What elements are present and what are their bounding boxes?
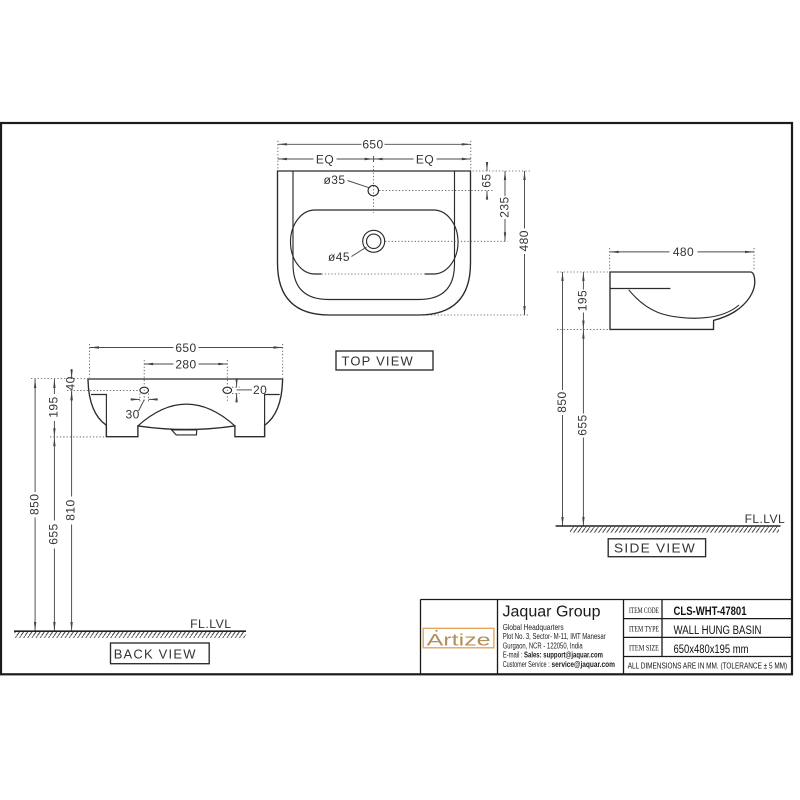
svg-text:CLS-WHT-47801: CLS-WHT-47801	[674, 606, 748, 618]
svg-text:65: 65	[479, 173, 493, 187]
svg-text:480: 480	[517, 230, 531, 251]
svg-text:Artize: Artize	[427, 631, 491, 650]
svg-text:Global Headquarters: Global Headquarters	[503, 623, 564, 632]
svg-text:WALL HUNG BASIN: WALL HUNG BASIN	[674, 625, 762, 637]
svg-text:650x480x195 mm: 650x480x195 mm	[674, 644, 749, 656]
svg-text:195: 195	[575, 290, 589, 311]
svg-text:service@jaquar.com: service@jaquar.com	[552, 660, 616, 669]
svg-text:655: 655	[46, 523, 60, 544]
svg-text:EQ: EQ	[316, 153, 334, 167]
svg-text:40: 40	[63, 376, 77, 390]
svg-text:Plot No. 3, Sector- M-11, IMT: Plot No. 3, Sector- M-11, IMT Manesar	[503, 632, 606, 641]
svg-text:ITEM CODE: ITEM CODE	[629, 605, 659, 615]
svg-text:Gurgaon, NCR - 122050, India: Gurgaon, NCR - 122050, India	[503, 642, 583, 651]
svg-text:BACK VIEW: BACK VIEW	[114, 647, 197, 662]
svg-text:Sales: support@jaquar.com: Sales: support@jaquar.com	[524, 650, 603, 659]
svg-text:810: 810	[64, 499, 78, 520]
svg-text:EQ: EQ	[416, 153, 434, 167]
svg-text:195: 195	[46, 396, 60, 417]
svg-text:Jaquar Group: Jaquar Group	[503, 604, 601, 621]
svg-text:850: 850	[555, 391, 569, 412]
svg-text:655: 655	[575, 414, 589, 435]
svg-text:ALL DIMENSIONS ARE IN MM. (TOL: ALL DIMENSIONS ARE IN MM. (TOLERANCE ± 5…	[628, 662, 788, 671]
svg-text:SIDE VIEW: SIDE VIEW	[614, 541, 696, 556]
svg-text:FL.LVL: FL.LVL	[190, 617, 231, 631]
svg-text:235: 235	[497, 196, 511, 217]
svg-text:ITEM TYPE: ITEM TYPE	[629, 624, 659, 634]
svg-text:20: 20	[253, 383, 267, 397]
svg-text:FL.LVL: FL.LVL	[745, 512, 786, 526]
svg-text:30: 30	[126, 408, 140, 422]
svg-text:ø35: ø35	[324, 173, 346, 187]
svg-text:650: 650	[362, 138, 383, 152]
svg-text:280: 280	[175, 357, 196, 371]
svg-text:480: 480	[673, 245, 694, 259]
svg-text:ITEM SIZE: ITEM SIZE	[629, 643, 659, 653]
svg-text:650: 650	[175, 341, 196, 355]
svg-text:Customer Service :: Customer Service :	[503, 660, 550, 669]
svg-text:TOP VIEW: TOP VIEW	[342, 353, 415, 368]
svg-text:ø45: ø45	[328, 250, 350, 264]
svg-text:850: 850	[28, 494, 42, 515]
svg-text:E-mail :: E-mail :	[503, 650, 523, 659]
